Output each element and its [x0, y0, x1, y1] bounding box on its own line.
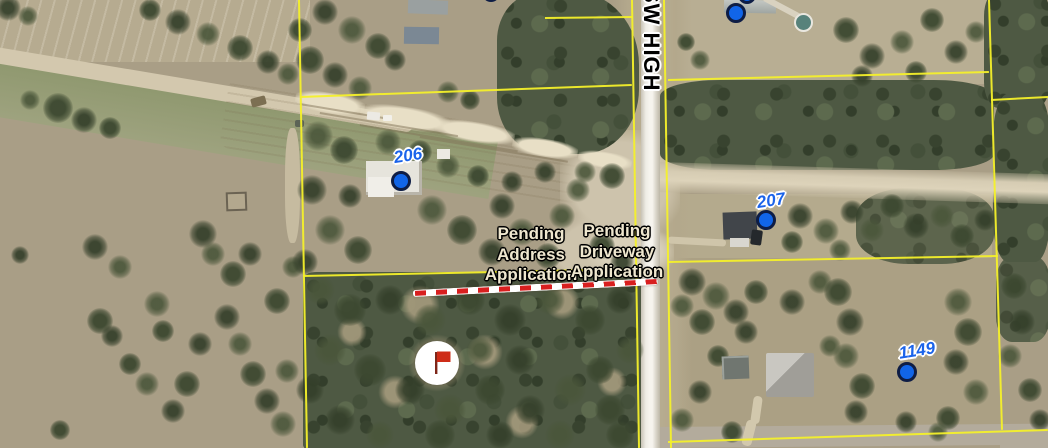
tree-canopy: [501, 171, 523, 193]
tree-canopy: [11, 246, 29, 264]
tree-canopy: [998, 344, 1022, 368]
building-roof: [404, 27, 439, 45]
tree-canopy: [895, 411, 917, 433]
forest-canopy: [984, 0, 1048, 108]
swimming-pool: [794, 13, 813, 32]
tree-canopy: [824, 278, 852, 306]
tree-canopy: [963, 379, 989, 405]
flag-marker[interactable]: [415, 341, 459, 385]
tree-canopy: [586, 356, 614, 384]
tree-canopy: [227, 35, 253, 61]
vehicle: [750, 229, 763, 245]
tree-canopy: [322, 62, 348, 88]
tree-canopy: [460, 90, 480, 110]
tree-canopy: [944, 288, 972, 316]
tree-canopy: [575, 305, 605, 335]
tree-canopy: [787, 203, 813, 229]
tree-canopy: [779, 289, 805, 315]
tree-canopy: [425, 420, 455, 448]
tree-canopy: [489, 193, 515, 219]
tree-canopy: [466, 336, 494, 364]
tree-canopy: [344, 236, 372, 264]
forest-canopy: [497, 0, 639, 154]
tree-canopy: [228, 332, 252, 356]
tree-canopy: [954, 318, 982, 346]
tree-canopy: [1009, 309, 1035, 335]
forest-canopy: [660, 80, 994, 170]
tree-canopy: [275, 359, 299, 383]
tree-canopy: [338, 16, 366, 44]
tree-canopy: [201, 242, 225, 266]
tree-canopy: [277, 63, 299, 85]
tree-canopy: [744, 280, 768, 304]
tree-canopy: [325, 405, 355, 435]
tree-canopy: [330, 136, 358, 164]
tree-canopy: [606, 421, 634, 448]
tree-canopy: [82, 234, 108, 260]
building-roof: [408, 0, 448, 15]
road-name-label: SW HIGH: [638, 0, 664, 92]
tree-canopy: [689, 309, 715, 335]
tree-canopy: [616, 336, 644, 364]
tree-canopy: [734, 320, 758, 344]
tree-canopy: [505, 345, 535, 375]
gis-map-viewport[interactable]: 2062071149 SW HIGH Pending Address Appli…: [0, 0, 1048, 448]
tree-canopy: [238, 242, 262, 266]
tree-canopy: [414, 304, 446, 336]
tree-canopy: [599, 163, 625, 189]
tree-canopy: [270, 411, 296, 437]
house-207-garage: [730, 238, 749, 247]
tree-canopy: [174, 371, 200, 397]
tree-canopy: [1029, 409, 1048, 431]
address-point-marker-206[interactable]: [391, 171, 411, 191]
work-vehicle: [367, 111, 381, 120]
tree-canopy: [494, 304, 526, 336]
tree-canopy: [950, 224, 974, 248]
tree-canopy: [101, 325, 123, 347]
tree-canopy: [677, 33, 695, 51]
tree-canopy: [43, 93, 73, 123]
tree-canopy: [348, 76, 372, 100]
tree-canopy: [384, 49, 406, 71]
tree-canopy: [135, 372, 159, 396]
shed-roof: [437, 149, 450, 159]
tree-canopy: [220, 261, 246, 287]
tree-canopy: [334, 294, 366, 326]
tree-canopy: [152, 320, 174, 342]
pending-driveway-line2: Driveway: [551, 242, 683, 263]
tree-canopy: [108, 255, 132, 279]
tree-canopy: [18, 6, 38, 26]
tree-canopy: [974, 209, 996, 231]
tree-canopy: [1018, 378, 1042, 402]
tree-canopy: [849, 373, 875, 399]
tree-canopy: [354, 354, 386, 386]
tree-canopy: [606, 286, 634, 314]
tree-canopy: [486, 421, 514, 448]
tree-canopy: [836, 308, 864, 336]
tree-canopy: [554, 374, 586, 406]
tree-canopy: [240, 361, 266, 387]
barn-1149-roof: [722, 356, 750, 380]
tree-canopy: [165, 9, 191, 35]
tree-canopy: [144, 291, 170, 317]
tree-canopy: [840, 200, 864, 224]
tree-canopy: [161, 399, 185, 423]
label-separator-dash: -: [566, 261, 572, 281]
address-point-marker-top-right[interactable]: [726, 3, 746, 23]
tree-canopy: [315, 215, 345, 245]
tree-canopy: [819, 335, 841, 357]
tree-canopy: [196, 22, 220, 46]
tree-canopy: [314, 334, 346, 366]
tree-canopy: [944, 40, 968, 64]
tree-canopy: [890, 30, 914, 54]
tree-canopy: [71, 107, 97, 133]
house-1149-roof: [766, 353, 814, 397]
tree-canopy: [338, 184, 362, 208]
tree-canopy: [139, 0, 161, 21]
tree-canopy: [417, 195, 447, 225]
address-point-marker-1149[interactable]: [897, 362, 917, 382]
tree-canopy: [366, 421, 394, 448]
tree-canopy: [670, 408, 694, 432]
tree-canopy: [50, 420, 70, 440]
tree-canopy: [20, 90, 40, 110]
tree-canopy: [903, 213, 929, 239]
tree-canopy: [475, 375, 505, 405]
tree-canopy: [296, 376, 324, 404]
work-vehicle: [383, 115, 392, 121]
address-point-marker-top-center[interactable]: [482, 0, 500, 2]
tree-canopy: [534, 161, 556, 183]
fenced-pen: [226, 192, 248, 212]
tree-canopy: [943, 349, 969, 375]
tree-canopy: [670, 294, 694, 318]
tree-canopy: [880, 194, 904, 218]
pending-driveway-line1: Pending: [551, 221, 683, 242]
tree-canopy: [844, 400, 868, 424]
tree-canopy: [860, 218, 884, 242]
tree-canopy: [188, 332, 212, 356]
tree-canopy: [467, 165, 489, 187]
tree-canopy: [312, 0, 338, 25]
tree-canopy: [303, 121, 333, 151]
tree-canopy: [292, 249, 318, 275]
tree-canopy: [690, 50, 710, 70]
tree-canopy: [515, 395, 545, 425]
tree-canopy: [305, 275, 335, 305]
tree-canopy: [545, 420, 575, 448]
tree-canopy: [214, 304, 240, 330]
tree-canopy: [833, 17, 859, 43]
tree-canopy: [1001, 273, 1027, 299]
tree-canopy: [99, 117, 121, 139]
dirt: [1000, 432, 1048, 448]
tree-canopy: [688, 380, 712, 404]
tree-canopy: [254, 388, 280, 414]
tree-canopy: [965, 21, 987, 43]
tree-canopy: [375, 285, 405, 315]
tree-canopy: [119, 353, 141, 375]
tree-canopy: [574, 161, 596, 183]
tree-canopy: [920, 8, 944, 32]
tree-canopy: [930, 204, 954, 228]
tree-canopy: [781, 231, 803, 253]
red-flag-icon: [415, 341, 459, 385]
tree-canopy: [264, 288, 290, 314]
